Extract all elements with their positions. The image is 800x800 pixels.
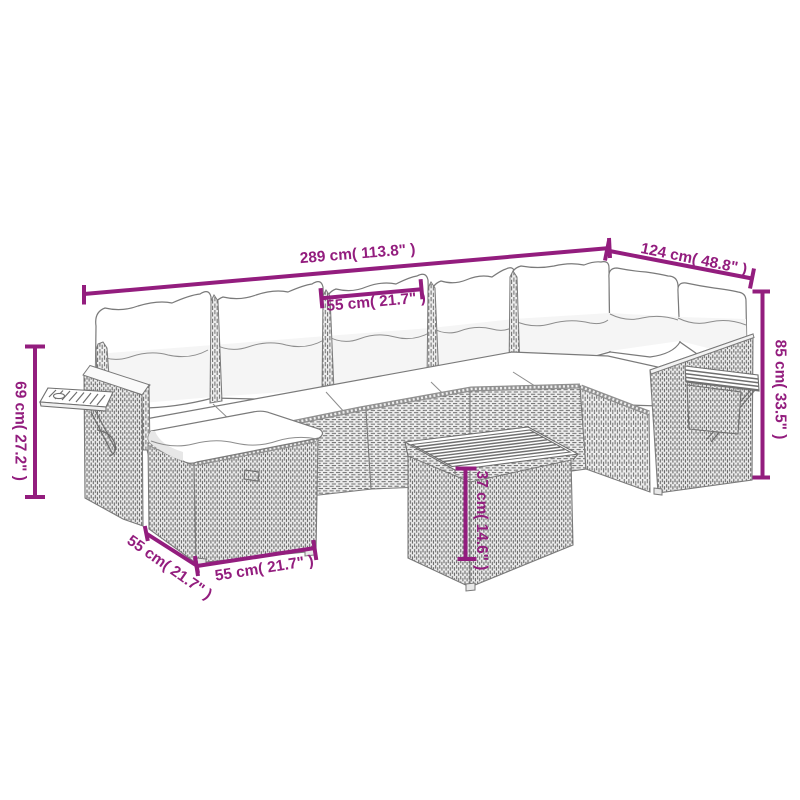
svg-text:289 cm( 113.8" ): 289 cm( 113.8" ): [299, 241, 416, 267]
svg-text:37 cm( 14.6" ): 37 cm( 14.6" ): [473, 471, 490, 571]
svg-text:124 cm( 48.8" ): 124 cm( 48.8" ): [639, 240, 748, 278]
svg-text:85 cm( 33.5" ): 85 cm( 33.5" ): [772, 340, 789, 440]
svg-text:69 cm( 27.2" ): 69 cm( 27.2" ): [12, 381, 29, 481]
